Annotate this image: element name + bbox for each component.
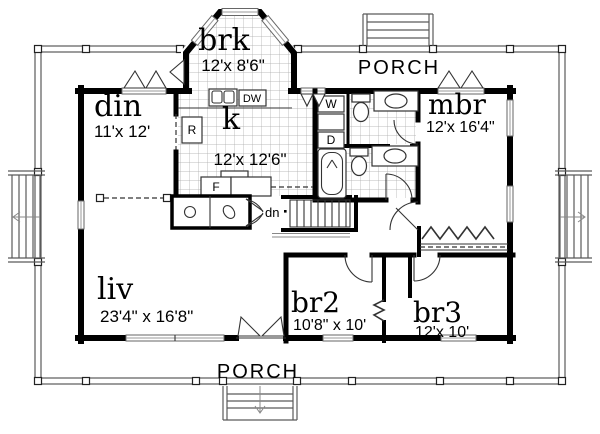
steps-right	[555, 171, 592, 262]
floor-plan-page: brk 12'x 8'6" din 11'x 12' k 12'x 12'6" …	[0, 0, 600, 434]
din-label: din	[94, 89, 142, 124]
steps-left	[8, 171, 45, 262]
stairs-dn-label: dn	[265, 205, 279, 220]
mbr-dims: 12'x 16'4"	[426, 119, 495, 136]
din-dims: 11'x 12'	[94, 122, 150, 141]
br2-closet-bifold	[374, 300, 384, 321]
liv-left-window	[78, 201, 84, 229]
mbr-closet-bifold	[420, 227, 508, 250]
mbr-right-window-2	[507, 186, 513, 222]
vanity-sink	[374, 91, 418, 111]
front-french-doors	[236, 317, 286, 338]
kitchen-label: k	[222, 102, 241, 137]
br2-label: br2	[291, 286, 340, 319]
liv-dims: 23'4" x 16'8"	[100, 307, 193, 326]
steps-top	[363, 14, 433, 46]
vanity-sink	[372, 146, 418, 166]
steps-bottom	[223, 386, 297, 420]
stairs-down	[246, 199, 350, 227]
br2-window	[323, 335, 353, 341]
porch-bottom-label: PORCH	[217, 361, 299, 383]
brk-dims: 12'x 8'6"	[201, 56, 265, 75]
kitchen-dims: 12'x 12'6"	[213, 150, 286, 169]
mbr-door	[390, 202, 418, 230]
liv-bottom-window	[126, 335, 224, 341]
mbr-right-window-1	[507, 100, 513, 136]
brk-label: brk	[198, 23, 251, 58]
br2-door	[345, 255, 372, 282]
br3-dims: 12'x 10'	[415, 324, 469, 341]
dishwasher-label: DW	[243, 93, 262, 105]
newel-dot	[284, 210, 287, 213]
br3-door	[414, 255, 440, 281]
toilet	[350, 148, 368, 176]
dryer-label: D	[327, 133, 336, 147]
br2-dims: 10'8" x 10'	[293, 317, 366, 334]
refrigerator-label: R	[188, 123, 197, 137]
porch-top-label: PORCH	[358, 57, 440, 79]
toilet	[352, 94, 370, 122]
bathtub	[318, 149, 346, 198]
liv-label: liv	[97, 272, 133, 307]
mbr-label: mbr	[428, 88, 486, 121]
furnace-label: F	[212, 180, 219, 194]
powder-vanity	[172, 196, 250, 228]
floor-plan-drawing: brk 12'x 8'6" din 11'x 12' k 12'x 12'6" …	[0, 0, 600, 434]
washer-label: W	[325, 97, 337, 111]
